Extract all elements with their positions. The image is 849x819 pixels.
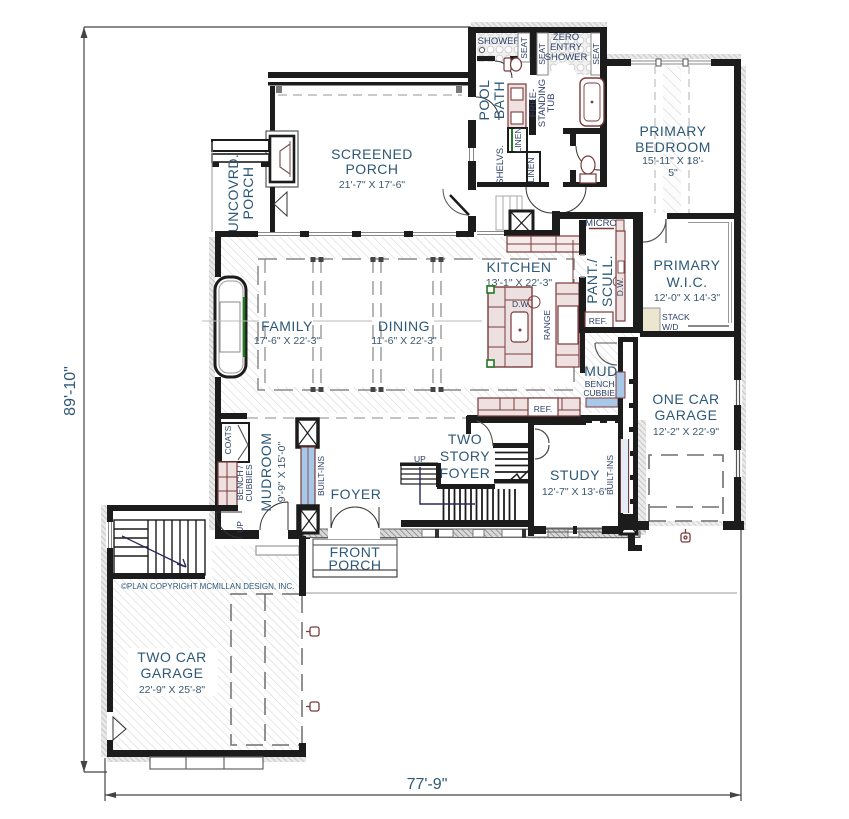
svg-text:12'-2" X 22'-9": 12'-2" X 22'-9" [653, 426, 720, 438]
svg-text:MUD: MUD [584, 363, 617, 379]
svg-text:RANGE: RANGE [542, 310, 552, 341]
svg-text:SHELVS.: SHELVS. [495, 145, 506, 184]
svg-text:5": 5" [668, 167, 678, 179]
svg-text:SCREENED: SCREENED [331, 146, 413, 162]
svg-text:BATH: BATH [491, 81, 507, 119]
svg-text:PRIMARY: PRIMARY [639, 123, 706, 139]
svg-text:POOL: POOL [476, 80, 492, 121]
svg-text:GARAGE: GARAGE [655, 407, 718, 423]
svg-text:UP: UP [235, 521, 245, 533]
svg-text:SHOWER: SHOWER [478, 36, 521, 47]
svg-text:21'-7" X 17'-6": 21'-7" X 17'-6" [339, 179, 406, 191]
svg-text:GARAGE: GARAGE [141, 665, 204, 681]
svg-text:LINEN: LINEN [513, 127, 523, 152]
svg-text:D.W.: D.W. [512, 299, 530, 309]
svg-text:UNCOVRD.: UNCOVRD. [225, 154, 241, 233]
svg-text:ONE CAR: ONE CAR [652, 391, 719, 407]
svg-text:MICRO: MICRO [585, 218, 617, 229]
svg-text:W/D: W/D [662, 322, 679, 332]
svg-text:BEDROOM: BEDROOM [635, 139, 711, 155]
svg-text:SHOWER: SHOWER [545, 52, 588, 63]
svg-text:77'-9": 77'-9" [407, 776, 448, 793]
svg-text:SEAT: SEAT [519, 37, 529, 59]
svg-text:STORY: STORY [440, 448, 490, 464]
svg-text:TWO: TWO [448, 431, 482, 447]
svg-text:12'-7" X 13'-6": 12'-7" X 13'-6" [542, 486, 609, 498]
svg-text:FAMILY: FAMILY [261, 318, 313, 334]
svg-text:PANT./: PANT./ [584, 258, 600, 304]
svg-text:12'-0" X 14'-3": 12'-0" X 14'-3" [654, 292, 721, 304]
svg-text:KITCHEN: KITCHEN [487, 259, 552, 275]
svg-text:BUILT-INS: BUILT-INS [605, 455, 615, 495]
svg-text:BUILT-INS: BUILT-INS [316, 456, 326, 496]
svg-text:9'-9" X 15'-0": 9'-9" X 15'-0" [276, 441, 288, 502]
svg-text:©PLAN COPYRIGHT MCMILLAN DESIG: ©PLAN COPYRIGHT MCMILLAN DESIGN, INC. [121, 582, 294, 591]
svg-text:TUB: TUB [546, 94, 557, 113]
svg-text:STUDY: STUDY [550, 467, 600, 483]
svg-text:W.I.C.: W.I.C. [666, 274, 707, 290]
svg-text:DINING: DINING [378, 318, 430, 334]
svg-text:15'-11" X 18'-: 15'-11" X 18'- [642, 155, 704, 167]
svg-text:CUBBIES: CUBBIES [583, 388, 621, 398]
svg-text:89'-10": 89'-10" [62, 366, 79, 416]
svg-text:D.W.: D.W. [615, 278, 625, 296]
svg-text:CUBBIES: CUBBIES [244, 464, 254, 502]
svg-text:COATS: COATS [223, 425, 233, 454]
svg-text:PORCH: PORCH [240, 166, 256, 219]
svg-text:MUDROOM: MUDROOM [258, 433, 274, 512]
svg-text:11'-6" X 22'-3": 11'-6" X 22'-3" [371, 335, 437, 347]
svg-text:22'-9" X 25'-8": 22'-9" X 25'-8" [139, 684, 206, 696]
svg-text:REF.: REF. [589, 316, 607, 326]
svg-text:SCULL.: SCULL. [599, 255, 615, 307]
svg-text:FOYER: FOYER [440, 465, 491, 481]
svg-text:17'-6" X 22'-3": 17'-6" X 22'-3" [254, 335, 321, 347]
svg-text:STACK: STACK [662, 312, 690, 322]
svg-text:TWO CAR: TWO CAR [137, 649, 207, 665]
svg-text:FOYER: FOYER [331, 486, 382, 502]
svg-text:SEAT: SEAT [591, 43, 601, 65]
svg-text:LINEN: LINEN [526, 157, 536, 182]
svg-text:REF.: REF. [534, 404, 552, 414]
svg-text:PRIMARY: PRIMARY [653, 257, 720, 273]
svg-text:PORCH: PORCH [345, 161, 398, 177]
